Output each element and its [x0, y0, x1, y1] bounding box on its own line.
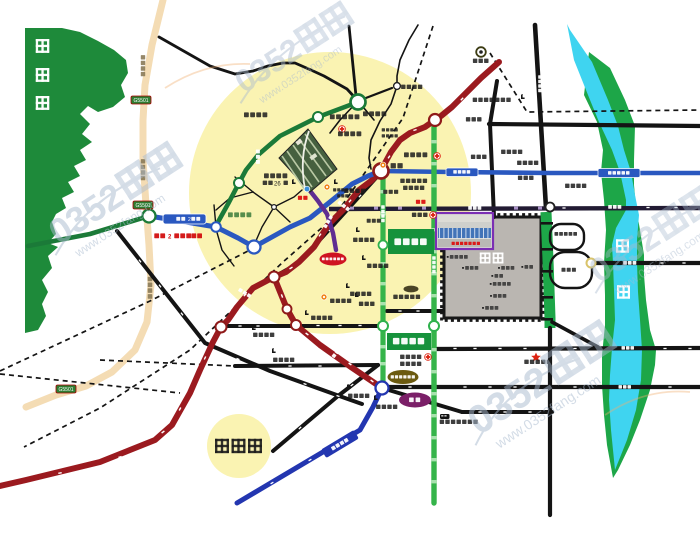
svg-text:26: 26 — [274, 182, 281, 188]
svg-text:G5501: G5501 — [133, 98, 148, 104]
svg-text:G5501: G5501 — [58, 387, 73, 393]
svg-text:2: 2 — [188, 217, 191, 223]
